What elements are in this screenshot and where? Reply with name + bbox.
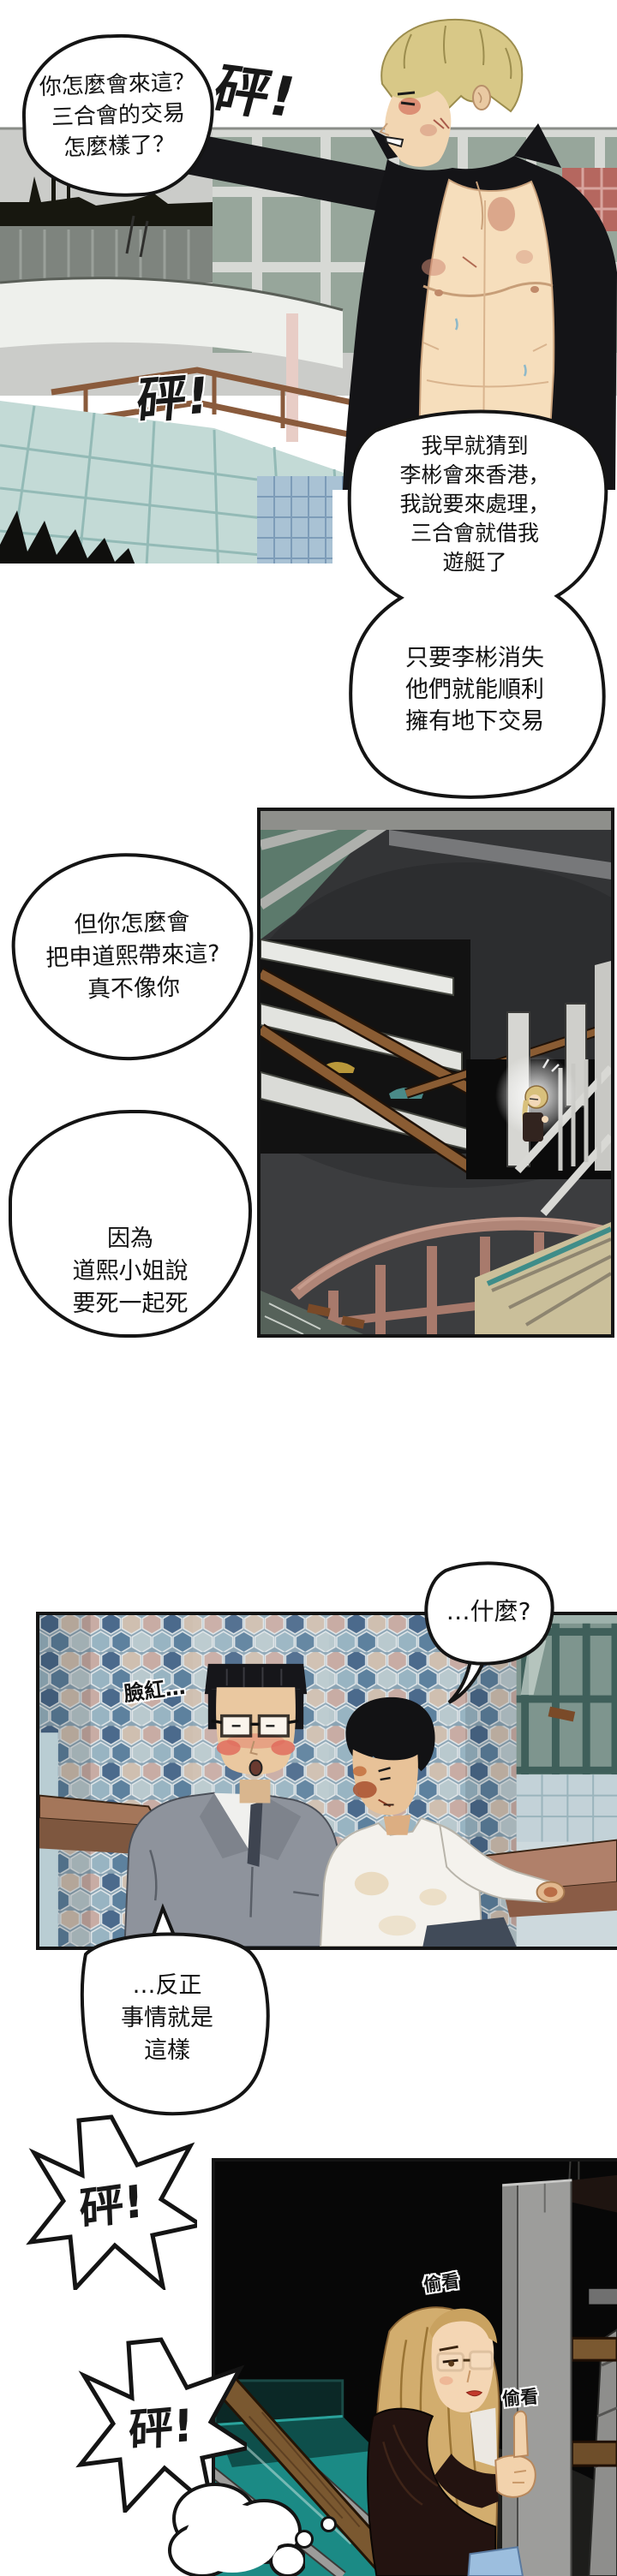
annotation-peek-1: 偷看 bbox=[422, 2267, 461, 2298]
sfx-burst-3: 砰! bbox=[26, 2112, 197, 2290]
speech-bubble-4: 因為 道熙小姐說 要死一起死 bbox=[9, 1110, 252, 1338]
bubble-4-line: 要死一起死 bbox=[73, 1288, 189, 1321]
bubble-4-line: 道熙小姐說 bbox=[73, 1255, 189, 1288]
bubble-6-line: 事情就是 bbox=[60, 2002, 274, 2035]
bubble-2a-line: 遊艇了 bbox=[332, 548, 617, 577]
bubble-1-line: 怎麼樣了？ bbox=[63, 129, 176, 164]
bubble-2b-line: 擁有地下交易 bbox=[332, 706, 617, 737]
bubble-2a-text: 我早就猜到 李彬會來香港， 我說要來處理， 三合會就借我 遊艇了 bbox=[332, 432, 617, 577]
bubble-2a-line: 我早就猜到 bbox=[332, 432, 617, 461]
bubble-2b-line: 他們就能順利 bbox=[332, 674, 617, 706]
speech-bubble-2: 我早就猜到 李彬會來香港， 我說要來處理， 三合會就借我 遊艇了 只要李彬消失 … bbox=[332, 401, 617, 807]
bubble-3-line: 把申道熙帶來這? bbox=[45, 938, 220, 975]
bubble-1-line: 三合會的交易 bbox=[51, 98, 185, 133]
thought-dot-large bbox=[295, 2530, 314, 2549]
bubble-5-shape bbox=[416, 1560, 560, 1714]
bubble-4-line: 因為 bbox=[107, 1223, 153, 1255]
panel-2-art bbox=[261, 811, 611, 1334]
bubble-3-line: 但你怎麼會 bbox=[74, 906, 190, 942]
bubble-5-line: …什麼? bbox=[416, 1596, 560, 1626]
panel-2 bbox=[257, 808, 614, 1338]
annotation-peek-2: 偷看 bbox=[501, 2382, 539, 2412]
sfx-bang-2: 砰! bbox=[134, 355, 213, 433]
bubble-5-text: …什麼? bbox=[416, 1596, 560, 1626]
thought-cloud-shape bbox=[168, 2472, 305, 2576]
speech-bubble-5: …什麼? bbox=[416, 1560, 560, 1714]
bubble-2b-text: 只要李彬消失 他們就能順利 擁有地下交易 bbox=[332, 642, 617, 737]
thought-cloud bbox=[168, 2472, 305, 2576]
bubble-2a-line: 李彬會來香港， bbox=[332, 461, 617, 490]
bubble-6-line: …反正 bbox=[60, 1970, 274, 2002]
bubble-6-line: 這樣 bbox=[60, 2035, 274, 2067]
bubble-6-text: …反正 事情就是 這樣 bbox=[60, 1970, 274, 2067]
thought-dot-small bbox=[320, 2516, 337, 2532]
bubble-3-line: 真不像你 bbox=[87, 972, 181, 1007]
bubble-2b-line: 只要李彬消失 bbox=[332, 642, 617, 674]
bubble-2a-line: 三合會就借我 bbox=[332, 519, 617, 548]
bubble-2a-line: 我說要來處理， bbox=[332, 490, 617, 519]
speech-bubble-3: 但你怎麼會 把申道熙帶來這? 真不像你 bbox=[9, 850, 256, 1063]
sfx-bang-3: 砰! bbox=[23, 2100, 199, 2303]
speech-bubble-6: …反正 事情就是 這樣 bbox=[60, 1903, 274, 2119]
comic-page: 你怎麼會來這？ 三合會的交易 怎麼樣了？ 我早就猜到 李彬會來香港， 我說要來處… bbox=[0, 0, 617, 2576]
speech-bubble-1: 你怎麼會來這？ 三合會的交易 怎麼樣了？ bbox=[20, 31, 217, 200]
